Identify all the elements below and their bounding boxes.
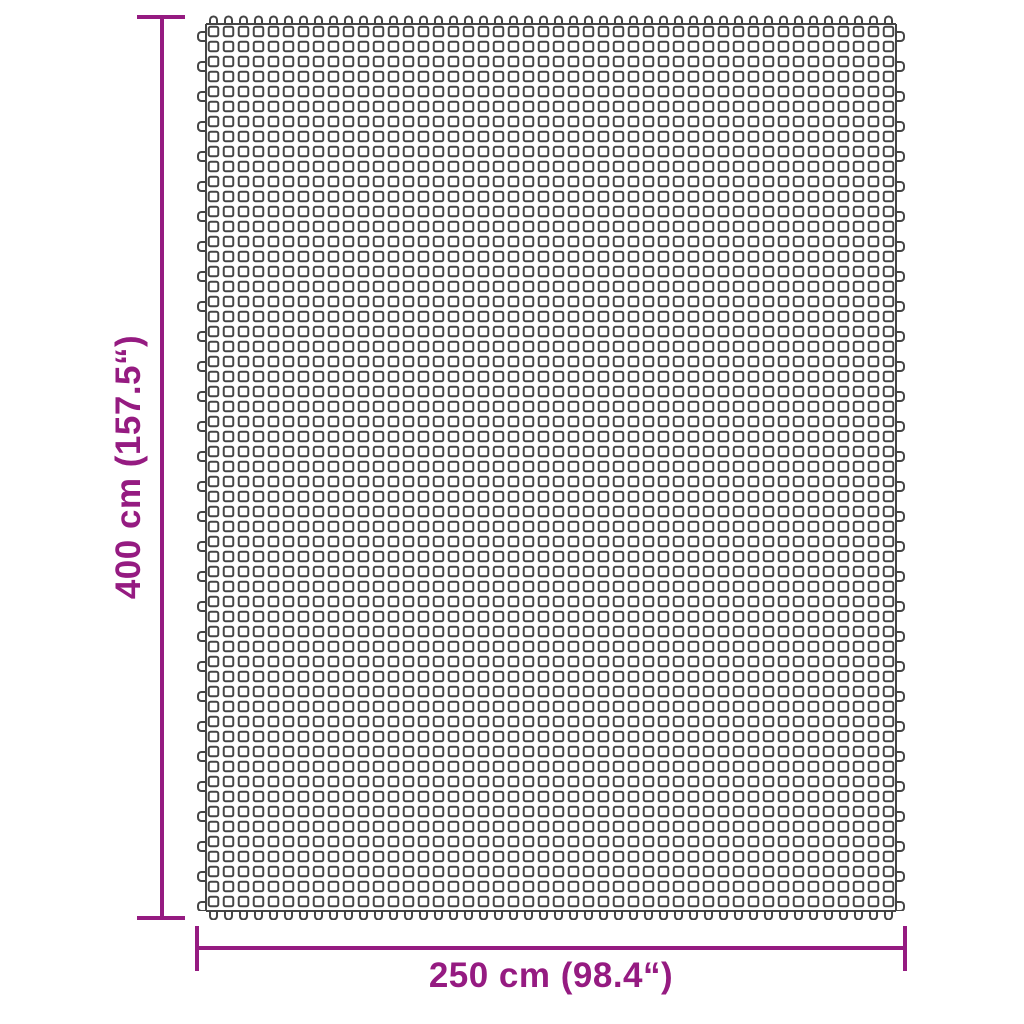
product-diagram: 400 cm (157.5“) 250 cm (98.4“) bbox=[0, 0, 1024, 1024]
mat-right-fringe bbox=[895, 24, 905, 911]
mat-mesh-grid bbox=[206, 24, 896, 911]
mat-bottom-fringe bbox=[206, 910, 896, 920]
height-dimension-cap-top bbox=[137, 15, 185, 19]
grid-mat-graphic bbox=[197, 15, 905, 920]
height-dimension-cap-bottom bbox=[137, 916, 185, 920]
width-dimension-cap-left bbox=[195, 926, 199, 971]
width-dimension-line bbox=[197, 946, 905, 950]
width-dimension-label: 250 cm (98.4“) bbox=[429, 956, 673, 996]
height-dimension-line bbox=[160, 15, 164, 920]
mat-left-fringe bbox=[197, 24, 207, 911]
height-dimension-label: 400 cm (157.5“) bbox=[109, 335, 149, 599]
width-dimension-cap-right bbox=[903, 926, 907, 971]
mat-top-fringe bbox=[206, 15, 896, 25]
